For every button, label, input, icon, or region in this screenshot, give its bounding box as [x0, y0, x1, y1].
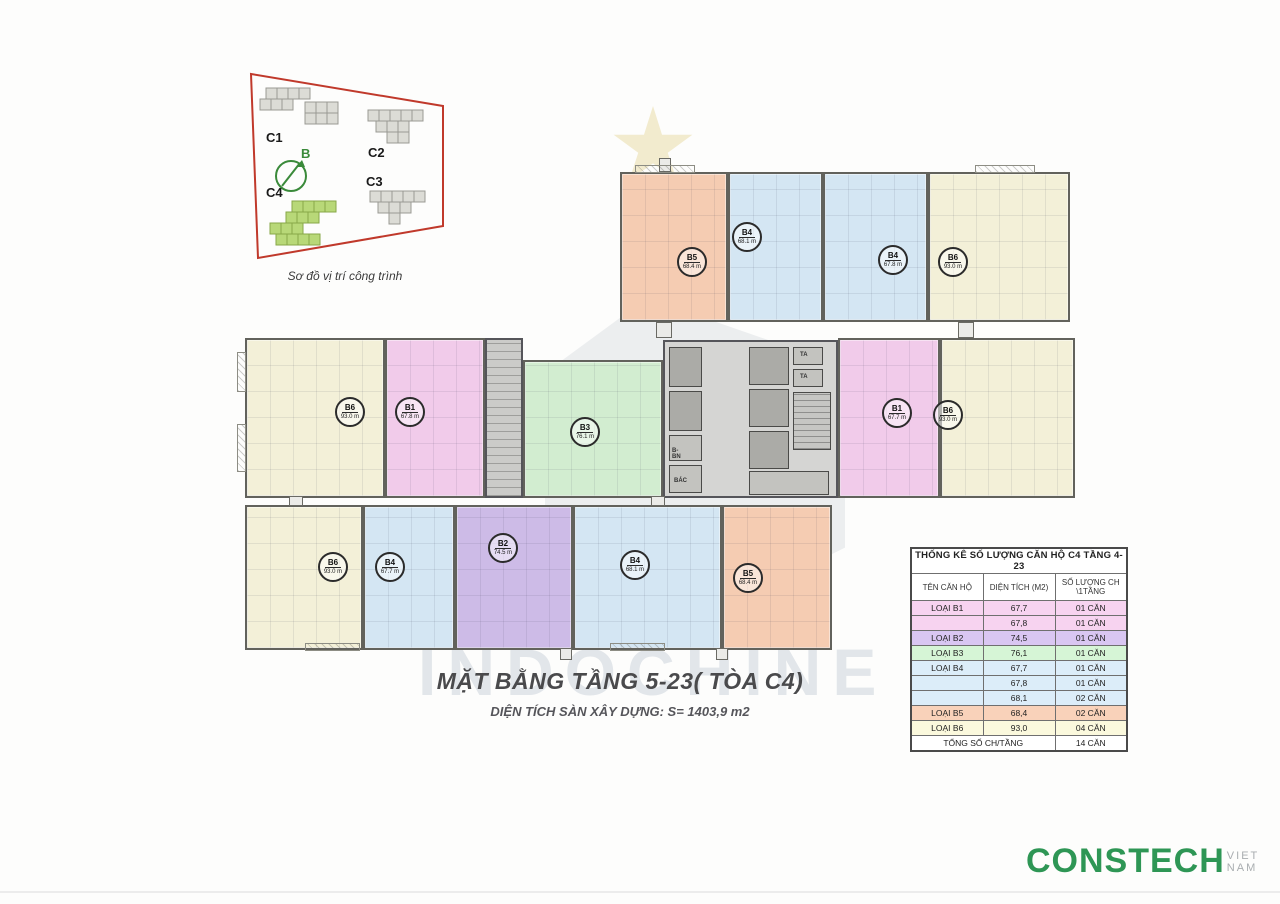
unit-area-label: 68.1 m — [626, 566, 644, 574]
unit-area-label: 93.0 m — [341, 413, 359, 421]
plan-subtitle: DIỆN TÍCH SÀN XÂY DỰNG: S= 1403,9 m2 — [370, 704, 870, 719]
apartment-unit-b2 — [455, 505, 573, 650]
secondary-stairwell — [485, 338, 523, 498]
area-cell: 93,0 — [983, 721, 1055, 736]
unit-name-cell: LOẠI B3 — [911, 646, 983, 661]
unit-area-label: 93.0 m — [939, 416, 957, 424]
table-column-header: TÊN CĂN HỘ — [911, 574, 983, 601]
table-row: 68,102 CĂN — [911, 691, 1127, 706]
unit-area-label: 68.1 m — [738, 238, 756, 246]
unit-name-cell: LOẠI B4 — [911, 661, 983, 676]
building-c3 — [370, 191, 425, 224]
title-block: MẶT BẰNG TẦNG 5-23( TÒA C4) DIỆN TÍCH SÀ… — [370, 668, 870, 719]
table-row: 67,801 CĂN — [911, 616, 1127, 631]
site-map-caption: Sơ đồ vị trí công trình — [288, 269, 403, 283]
unit-area-label: 67.8 m — [884, 261, 902, 269]
table-row: LOẠI B693,004 CĂN — [911, 721, 1127, 736]
total-value: 14 CĂN — [1055, 736, 1127, 752]
unit-type-label: B2 — [495, 539, 511, 549]
unit-type-label: B4 — [739, 228, 755, 238]
label-c2: C2 — [368, 145, 385, 160]
unit-type-label: B6 — [940, 406, 956, 416]
corridor-connector — [958, 322, 974, 338]
unit-type-label: B4 — [885, 251, 901, 261]
area-cell: 67,7 — [983, 601, 1055, 616]
unit-area-label: 67.7 m — [888, 414, 906, 422]
corridor-connector — [560, 648, 572, 660]
unit-name-cell — [911, 691, 983, 706]
area-cell: 68,4 — [983, 706, 1055, 721]
unit-type-label: B4 — [382, 558, 398, 568]
apartment-unit-b4 — [823, 172, 928, 322]
core-room-label: TA — [800, 352, 808, 358]
apartment-unit-b6 — [245, 505, 363, 650]
unit-statistics-table: THỐNG KÊ SỐ LƯỢNG CĂN HỘ C4 TẦNG 4-23 TÊ… — [910, 547, 1128, 752]
core-room — [793, 347, 823, 365]
apartment-unit-b5 — [620, 172, 728, 322]
area-cell: 67,8 — [983, 616, 1055, 631]
table-column-header: SỐ LƯỢNG CH \1TẦNG — [1055, 574, 1127, 601]
balcony — [975, 165, 1035, 173]
table-row: LOẠI B467,701 CĂN — [911, 661, 1127, 676]
label-c4: C4 — [266, 185, 283, 200]
corridor-connector — [651, 496, 665, 506]
unit-badge-b1: B167.8 m — [395, 397, 425, 427]
unit-type-label: B6 — [342, 403, 358, 413]
unit-type-label: B5 — [684, 253, 700, 263]
unit-name-cell: LOẠI B2 — [911, 631, 983, 646]
apartment-unit-b4 — [363, 505, 455, 650]
unit-badge-b6: B693.0 m — [938, 247, 968, 277]
balcony — [237, 424, 246, 472]
unit-type-label: B3 — [577, 423, 593, 433]
corridor-connector — [656, 322, 672, 338]
area-cell: 67,7 — [983, 661, 1055, 676]
total-label: TỔNG SỐ CH/TẦNG — [911, 736, 1055, 752]
unit-badge-b4: B468.1 m — [620, 550, 650, 580]
label-c1: C1 — [266, 130, 283, 145]
building-c2 — [368, 110, 423, 143]
count-cell: 01 CĂN — [1055, 676, 1127, 691]
count-cell: 01 CĂN — [1055, 631, 1127, 646]
unit-area-label: 68.4 m — [683, 263, 701, 271]
unit-type-label: B1 — [402, 403, 418, 413]
unit-area-label: 68.4 m — [739, 579, 757, 587]
footer-divider — [0, 891, 1280, 893]
unit-name-cell: LOẠI B1 — [911, 601, 983, 616]
apartment-unit-b4 — [573, 505, 722, 650]
count-cell: 01 CĂN — [1055, 616, 1127, 631]
count-cell: 01 CĂN — [1055, 601, 1127, 616]
site-location-map: C1 C2 C3 B C4 — [230, 58, 460, 293]
table-header-row: TÊN CĂN HỘDIỆN TÍCH (M2)SỐ LƯỢNG CH \1TẦ… — [911, 574, 1127, 601]
unit-badge-b4: B467.8 m — [878, 245, 908, 275]
unit-badge-b5: B568.4 m — [677, 247, 707, 277]
table-title: THỐNG KÊ SỐ LƯỢNG CĂN HỘ C4 TẦNG 4-23 — [911, 548, 1127, 574]
unit-badge-b4: B467.7 m — [375, 552, 405, 582]
balcony — [635, 165, 695, 173]
area-cell: 67,8 — [983, 676, 1055, 691]
plan-title: MẶT BẰNG TẦNG 5-23( TÒA C4) — [370, 668, 870, 695]
unit-area-label: 67.7 m — [381, 568, 399, 576]
area-cell: 74,5 — [983, 631, 1055, 646]
unit-area-label: 74.5 m — [494, 549, 512, 557]
core-room — [793, 369, 823, 387]
count-cell: 02 CĂN — [1055, 691, 1127, 706]
table-row: LOẠI B376,101 CĂN — [911, 646, 1127, 661]
core-room — [749, 471, 829, 495]
unit-type-label: B6 — [945, 253, 961, 263]
corridor-connector — [716, 648, 728, 660]
table-total-row: TỔNG SỐ CH/TẦNG 14 CĂN — [911, 736, 1127, 752]
core-room-label: TA — [800, 374, 808, 380]
core-room-label: BÁC — [674, 478, 687, 484]
label-north: B — [301, 146, 310, 161]
unit-area-label: 67.8 m — [401, 413, 419, 421]
unit-area-label: 93.0 m — [324, 568, 342, 576]
balcony — [305, 643, 360, 651]
unit-type-label: B6 — [325, 558, 341, 568]
floor-plan-page: INDOCHINE C1 C2 C3 — [0, 0, 1280, 904]
elevator-shaft — [749, 347, 789, 385]
corridor-connector — [289, 496, 303, 506]
area-cell: 68,1 — [983, 691, 1055, 706]
unit-name-cell — [911, 616, 983, 631]
count-cell: 01 CĂN — [1055, 646, 1127, 661]
unit-badge-b1: B167.7 m — [882, 398, 912, 428]
unit-badge-b6: B693.0 m — [335, 397, 365, 427]
building-c4 — [270, 201, 336, 245]
unit-name-cell: LOẠI B6 — [911, 721, 983, 736]
table-row: 67,801 CĂN — [911, 676, 1127, 691]
unit-badge-b6: B693.0 m — [933, 400, 963, 430]
unit-badge-b6: B693.0 m — [318, 552, 348, 582]
unit-name-cell: LOẠI B5 — [911, 706, 983, 721]
table-row: LOẠI B167,701 CĂN — [911, 601, 1127, 616]
elevator-shaft — [749, 431, 789, 469]
table-row: LOẠI B568,402 CĂN — [911, 706, 1127, 721]
count-cell: 02 CĂN — [1055, 706, 1127, 721]
unit-badge-b2: B274.5 m — [488, 533, 518, 563]
building-c1 — [260, 88, 338, 124]
core-room-label: B-BN — [672, 448, 681, 460]
balcony — [237, 352, 246, 392]
unit-type-label: B1 — [889, 404, 905, 414]
table-column-header: DIỆN TÍCH (M2) — [983, 574, 1055, 601]
area-cell: 76,1 — [983, 646, 1055, 661]
unit-area-label: 93.0 m — [944, 263, 962, 271]
count-cell: 04 CĂN — [1055, 721, 1127, 736]
balcony — [610, 643, 665, 651]
apartment-unit-b6 — [245, 338, 385, 498]
unit-area-label: 76.1 m — [576, 433, 594, 441]
unit-badge-b5: B568.4 m — [733, 563, 763, 593]
brand-suffix: VIET NAM — [1227, 850, 1280, 879]
elevator-shaft — [669, 391, 702, 431]
constech-logo: CONSTECH VIET NAM — [1026, 843, 1280, 879]
unit-type-label: B5 — [740, 569, 756, 579]
table-row: LOẠI B274,501 CĂN — [911, 631, 1127, 646]
brand-name: CONSTECH — [1026, 843, 1225, 879]
unit-badge-b4: B468.1 m — [732, 222, 762, 252]
unit-type-label: B4 — [627, 556, 643, 566]
unit-name-cell — [911, 676, 983, 691]
count-cell: 01 CĂN — [1055, 661, 1127, 676]
unit-badge-b3: B376.1 m — [570, 417, 600, 447]
elevator-shaft — [669, 347, 702, 387]
stairwell — [793, 392, 831, 450]
label-c3: C3 — [366, 174, 383, 189]
elevator-shaft — [749, 389, 789, 427]
